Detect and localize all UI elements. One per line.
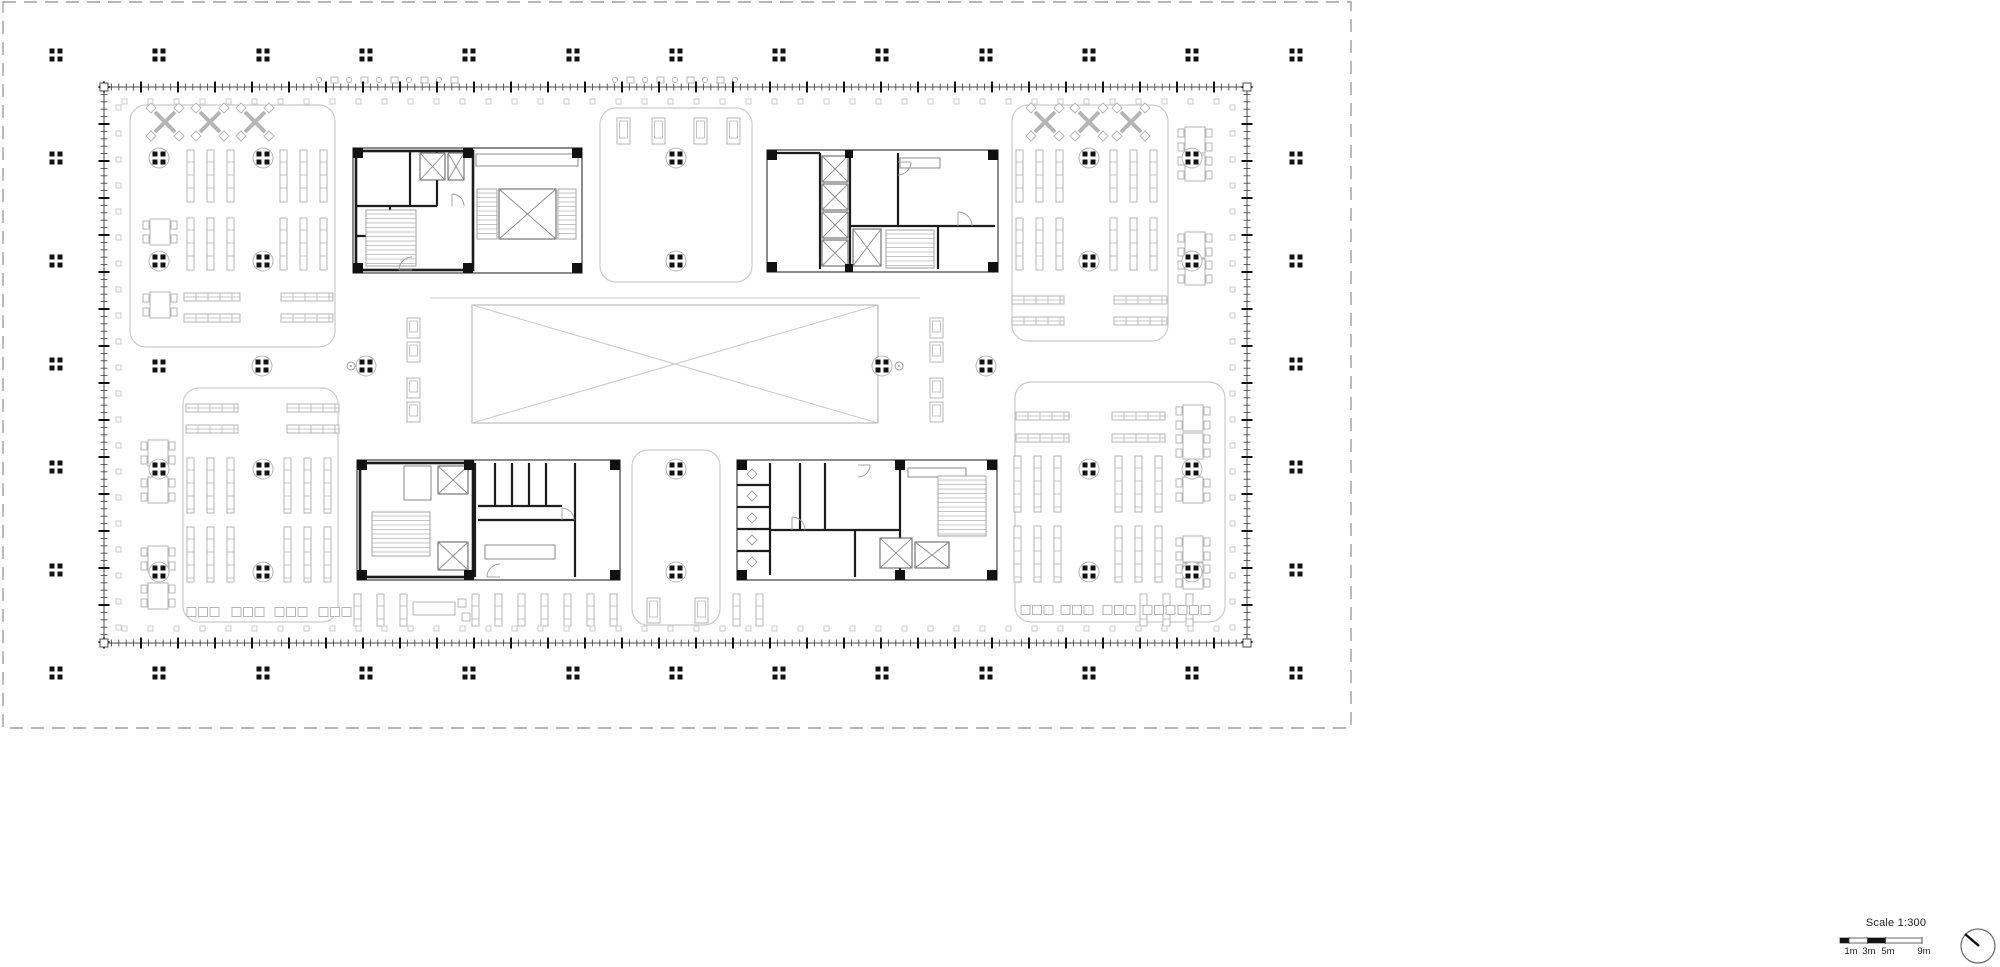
bookshelf — [187, 458, 194, 513]
bookshelf — [354, 594, 361, 626]
scale-label: Scale 1:300 — [1838, 917, 1954, 929]
column-cluster — [50, 255, 63, 268]
lounge-chair — [617, 118, 630, 144]
column-cluster — [1290, 667, 1303, 680]
bookshelf — [733, 594, 740, 626]
lift-shaft — [822, 212, 848, 238]
lounge-chair — [695, 598, 708, 623]
seating-group — [1143, 606, 1175, 615]
bookshelf — [1114, 296, 1167, 304]
column-cluster — [50, 461, 63, 474]
bookshelf — [186, 425, 238, 433]
bookshelf — [304, 458, 311, 513]
column-cluster — [980, 49, 993, 62]
scale-tick-3m: 3m — [1862, 946, 1875, 957]
column-cluster — [876, 667, 889, 680]
column-cluster — [149, 459, 169, 479]
bookshelf — [320, 218, 327, 270]
reading-table — [1070, 103, 1108, 141]
bookshelf — [518, 594, 525, 626]
lounge-chair — [407, 402, 420, 422]
bookshelf — [1115, 456, 1122, 512]
bookshelf — [1110, 150, 1117, 202]
reading-table — [236, 103, 274, 141]
wall-seat — [451, 77, 458, 83]
bookshelf — [495, 594, 502, 626]
bookshelf — [284, 527, 291, 582]
scale-tick-5m: 5m — [1881, 946, 1894, 957]
column-cluster — [149, 148, 169, 168]
bookshelf — [1150, 150, 1157, 202]
lounge-chair — [930, 402, 943, 422]
wall-seat — [391, 77, 398, 83]
lift-shaft — [499, 189, 556, 239]
core-bottom-right — [737, 460, 997, 580]
column-cluster — [567, 49, 580, 62]
bookshelf — [300, 218, 307, 270]
bookshelf — [1036, 218, 1043, 270]
bookshelf — [1135, 456, 1142, 512]
bookshelf — [324, 458, 331, 513]
bookshelf — [1012, 317, 1064, 325]
bookshelf — [1016, 434, 1069, 442]
lounge-chair — [407, 342, 420, 362]
bookshelf — [281, 314, 333, 322]
table-with-chairs — [143, 219, 177, 245]
column-cluster — [1290, 358, 1303, 371]
bookshelf — [184, 314, 240, 322]
lift-shaft — [438, 466, 468, 494]
lift-shaft — [822, 184, 848, 210]
lounge-chair — [652, 118, 665, 144]
column-cluster — [149, 251, 169, 271]
column-cluster — [1182, 251, 1202, 271]
bookshelf — [280, 150, 287, 202]
table-with-chairs — [1176, 477, 1210, 503]
bookshelf — [207, 218, 214, 270]
bookshelf — [324, 527, 331, 582]
lift-shaft — [420, 153, 445, 180]
column-cluster — [666, 562, 686, 582]
column-cluster — [976, 356, 996, 376]
column-cluster — [1182, 459, 1202, 479]
bookshelf — [227, 150, 234, 202]
column-cluster — [1186, 667, 1199, 680]
bookshelf — [1016, 412, 1069, 420]
bookshelf — [184, 293, 240, 301]
seating-group — [1061, 606, 1093, 615]
service-desk — [413, 599, 470, 621]
wall-stool — [377, 78, 382, 83]
column-cluster — [253, 562, 273, 582]
stair-flight — [558, 189, 576, 239]
bookshelf — [187, 527, 194, 582]
scale-tick-9m: 9m — [1917, 946, 1930, 957]
bookshelf — [207, 458, 214, 513]
column-cluster — [666, 459, 686, 479]
bookshelf — [227, 218, 234, 270]
wall-seat — [331, 77, 338, 83]
stair-flight — [938, 476, 986, 536]
table-with-chairs — [143, 292, 177, 318]
lift-shaft — [822, 240, 848, 266]
column-cluster — [872, 356, 892, 376]
column-cluster — [463, 667, 476, 680]
bookshelf — [187, 150, 194, 202]
bookshelf — [187, 218, 194, 270]
seating-group — [1103, 606, 1135, 615]
column-cluster — [360, 49, 373, 62]
lounge-chair — [930, 318, 943, 338]
column-cluster — [980, 667, 993, 680]
column-cluster — [1186, 49, 1199, 62]
bookshelf — [377, 594, 384, 626]
bookshelf — [1112, 412, 1165, 420]
column-cluster — [463, 49, 476, 62]
lift-shaft — [822, 156, 848, 182]
wall-seat — [627, 77, 634, 83]
column-cluster — [153, 360, 166, 373]
seating-group — [232, 608, 264, 617]
bookshelf — [1012, 296, 1064, 304]
bookshelf — [1016, 218, 1023, 270]
bookshelf — [1016, 150, 1023, 202]
central-void — [430, 298, 920, 423]
north-arrow-icon — [1960, 924, 2000, 964]
column-cluster — [50, 152, 63, 165]
lounge-chair — [647, 598, 660, 623]
column-cluster — [1083, 667, 1096, 680]
column-cluster — [1182, 562, 1202, 582]
column-cluster — [670, 667, 683, 680]
reading-table — [1026, 103, 1064, 141]
lift-shaft — [915, 542, 949, 568]
column-cluster — [153, 667, 166, 680]
bookshelf — [472, 594, 479, 626]
wall-stool — [407, 78, 412, 83]
seating-group — [275, 608, 307, 617]
zone-reading-bottom-left — [183, 388, 338, 622]
column-cluster — [253, 148, 273, 168]
wall-stool — [317, 78, 322, 83]
bookshelf — [610, 594, 617, 626]
bookshelf — [1135, 526, 1142, 582]
table-with-chairs — [1176, 405, 1210, 431]
column-cluster — [1290, 49, 1303, 62]
seating-group — [1178, 606, 1210, 615]
wall-stool — [347, 78, 352, 83]
column-cluster — [1083, 49, 1096, 62]
scale-tick-1m: 1m — [1844, 946, 1857, 957]
seating-group — [187, 608, 219, 617]
bookshelf — [1130, 150, 1137, 202]
column-cluster — [773, 667, 786, 680]
bookshelf — [280, 218, 287, 270]
bookshelf — [284, 458, 291, 513]
column-cluster — [149, 562, 169, 582]
bookshelf — [1054, 456, 1061, 512]
wall-stool — [613, 78, 618, 83]
bookshelf — [320, 150, 327, 202]
wall-stool — [673, 78, 678, 83]
column-cluster — [876, 49, 889, 62]
column-cluster — [670, 49, 683, 62]
bookshelf — [227, 458, 234, 513]
wall-seat — [687, 77, 694, 83]
table-with-chairs — [1176, 433, 1210, 459]
stair-flight — [372, 512, 430, 556]
bookshelf — [1155, 526, 1162, 582]
column-cluster — [356, 356, 376, 376]
bookshelf — [1014, 456, 1021, 512]
lounge-chair — [694, 118, 707, 144]
column-cluster — [50, 49, 63, 62]
bookshelf — [1014, 526, 1021, 582]
lounge-chair — [930, 342, 943, 362]
stair-flight — [886, 230, 934, 268]
column-cluster — [1290, 152, 1303, 165]
column-cluster — [666, 251, 686, 271]
column-cluster — [1290, 564, 1303, 577]
lounge-chair — [930, 378, 943, 398]
bookshelf — [1056, 218, 1063, 270]
table-with-chairs — [141, 583, 175, 609]
bookshelf — [1034, 526, 1041, 582]
bookshelf — [287, 404, 339, 412]
column-cluster — [253, 459, 273, 479]
column-cluster — [567, 667, 580, 680]
table-with-chairs — [141, 477, 175, 503]
reading-table — [1112, 103, 1150, 141]
column-cluster — [360, 667, 373, 680]
lounge-chair — [727, 118, 740, 144]
bookshelf — [186, 404, 238, 412]
lounge-chair — [407, 318, 420, 338]
lift-shaft — [438, 542, 468, 570]
column-cluster — [257, 49, 270, 62]
column-cluster — [666, 148, 686, 168]
column-cluster — [1079, 562, 1099, 582]
lift-shaft — [448, 153, 464, 180]
column-cluster — [1290, 461, 1303, 474]
floor-plan-drawing — [0, 0, 2000, 967]
bookshelf — [1054, 526, 1061, 582]
bookshelf — [300, 150, 307, 202]
floor-plan-canvas: Scale 1:300 1m 3m 5m 9m — [0, 0, 2000, 967]
lift-shaft — [880, 538, 912, 568]
column-cluster — [773, 49, 786, 62]
bookshelf — [564, 594, 571, 626]
bookshelf — [587, 594, 594, 626]
wall-stool — [643, 78, 648, 83]
wall-stool — [703, 78, 708, 83]
bookshelf — [1036, 150, 1043, 202]
bookshelf — [1155, 456, 1162, 512]
stair-flight — [477, 189, 497, 239]
wall-seat — [717, 77, 724, 83]
seating-group — [1021, 606, 1053, 615]
column-cluster — [1079, 251, 1099, 271]
bookshelf — [227, 527, 234, 582]
table-with-chairs — [1176, 536, 1210, 562]
column-cluster — [153, 49, 166, 62]
seating-group — [319, 608, 351, 617]
column-cluster — [50, 667, 63, 680]
bookshelf — [1112, 434, 1165, 442]
bookshelf — [207, 527, 214, 582]
bookshelf — [756, 594, 763, 626]
bookshelf — [287, 425, 339, 433]
column-cluster — [1079, 148, 1099, 168]
scale-indicator: Scale 1:300 1m 3m 5m 9m — [1838, 915, 2000, 967]
column-cluster — [1290, 255, 1303, 268]
bookshelf — [400, 594, 407, 626]
bookshelf — [281, 293, 333, 301]
bookshelf — [1115, 526, 1122, 582]
bookshelf — [1110, 218, 1117, 270]
bookshelf — [1150, 218, 1157, 270]
column-cluster — [253, 251, 273, 271]
reading-table — [146, 103, 184, 141]
column-cluster — [50, 564, 63, 577]
column-cluster — [257, 667, 270, 680]
lift-shaft — [853, 229, 881, 266]
core-bottom-left — [357, 460, 620, 580]
column-cluster — [1079, 459, 1099, 479]
column-cluster — [252, 356, 272, 376]
column-cluster — [50, 358, 63, 371]
lounge-chair — [407, 378, 420, 398]
bookshelf — [1034, 456, 1041, 512]
bookshelf — [1056, 150, 1063, 202]
core-top-right — [767, 150, 998, 272]
bookshelf — [304, 527, 311, 582]
bookshelf — [541, 594, 548, 626]
bookshelf — [1130, 218, 1137, 270]
bookshelf — [207, 150, 214, 202]
column-cluster — [1182, 148, 1202, 168]
core-top-left — [353, 148, 582, 273]
wall-seat — [421, 77, 428, 83]
bookshelf — [1114, 317, 1167, 325]
reading-table — [191, 103, 229, 141]
